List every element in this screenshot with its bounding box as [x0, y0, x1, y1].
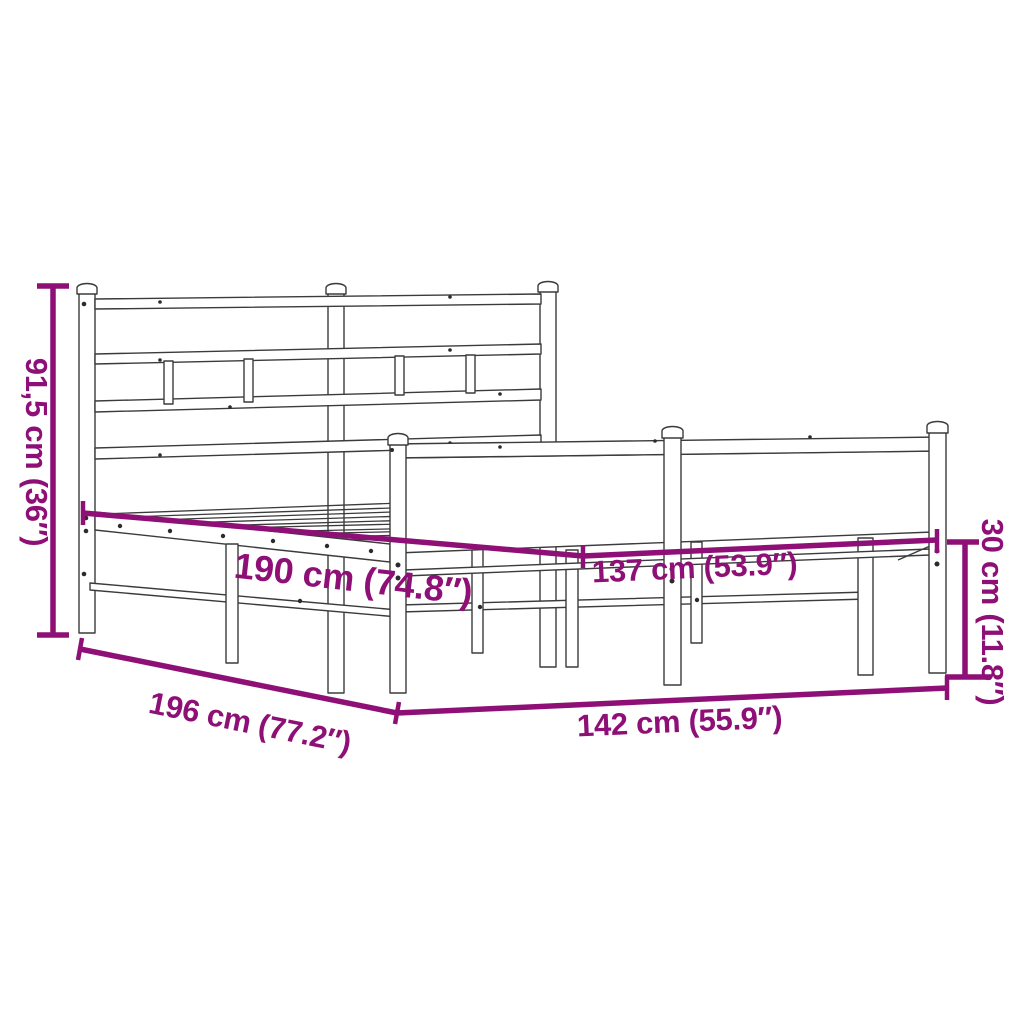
bed-frame-drawing [77, 282, 948, 694]
headboard-post-caps [77, 282, 558, 295]
diagram-canvas: 91,5 cm (36″) 190 cm (74.8″) 137 cm (53.… [0, 0, 1024, 1024]
dimension-footboard-height: 30 cm (11.8″) [945, 519, 1010, 706]
headboard-post-left [79, 292, 95, 633]
dimension-label-footboard-height: 30 cm (11.8″) [975, 519, 1010, 706]
bed-frame-dimension-diagram: 91,5 cm (36″) 190 cm (74.8″) 137 cm (53.… [0, 0, 1024, 1024]
dimension-headboard-height: 91,5 cm (36″) [19, 286, 69, 635]
dimension-outer-width: 142 cm (55.9″) [397, 676, 947, 743]
dimension-label-headboard-height: 91,5 cm (36″) [19, 358, 54, 546]
